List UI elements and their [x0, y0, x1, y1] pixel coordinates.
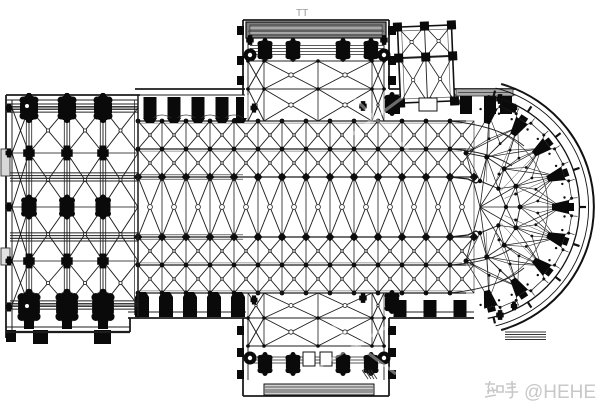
svg-text:TT: TT	[296, 8, 308, 19]
svg-text:@HEHE: @HEHE	[524, 382, 596, 403]
